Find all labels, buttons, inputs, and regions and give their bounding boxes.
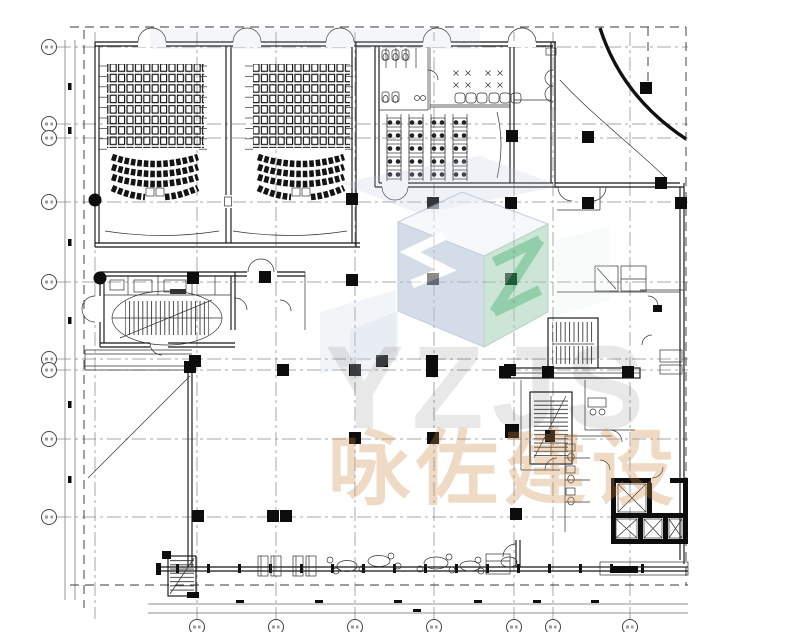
grid-bubble [42,275,57,290]
grid-bubble [42,510,57,525]
sofa-seat [466,93,476,103]
column [582,197,594,209]
grid-bubble [623,620,638,632]
lounge-chair [258,556,268,576]
grid-bubble [42,195,57,210]
sofa-seat [511,93,521,103]
restroom-fixtures [382,48,426,103]
column [184,361,196,373]
column [582,131,594,143]
floor-plan: YZJS 咏佐建设 [0,0,800,632]
grid-bubble [348,620,363,632]
logo-echo-3 [556,226,610,316]
grid-bubble [507,620,522,632]
column [346,274,358,286]
column [259,271,271,283]
column [192,510,204,522]
column [655,177,667,189]
ramp-diagonal [88,376,190,478]
grid-bubble [42,117,57,132]
watermark-brand-name: 咏佐建设 [328,422,680,517]
column-round [89,194,102,207]
column-round [94,272,107,285]
column [267,510,279,522]
watermark: YZJS 咏佐建设 [150,29,680,517]
grid-bubble [269,620,284,632]
column [280,510,292,522]
column [505,197,517,209]
driveway-curve-thin [560,80,667,179]
grid-bubble [190,620,205,632]
grid-bubble [546,620,561,632]
seat-rows-left [107,64,204,148]
exterior-stair [162,551,199,598]
lobby-oval-table [368,556,390,567]
column [506,130,518,142]
sofa-seat [489,93,499,103]
column [277,364,289,376]
seat-rows-right [253,64,350,148]
grid-bubble [42,131,57,146]
sofa-seat [455,93,465,103]
column [187,272,199,284]
grid-bubble [42,432,57,447]
grid-bubble [42,363,57,378]
oval-stair [110,280,222,345]
column [675,197,687,209]
drawing-canvas: YZJS 咏佐建设 [0,0,800,632]
grid-bubble [42,40,57,55]
sofa-seat [477,93,487,103]
lobby-oval-table [501,557,517,567]
grid-bubble [427,620,442,632]
lounge-chair [306,556,316,576]
column [640,82,652,94]
column [346,193,358,205]
lobby-oval-table [337,561,357,572]
sofa-seat [500,93,510,103]
curved-seat-rows [112,157,344,197]
logo-echo-band [150,29,480,49]
